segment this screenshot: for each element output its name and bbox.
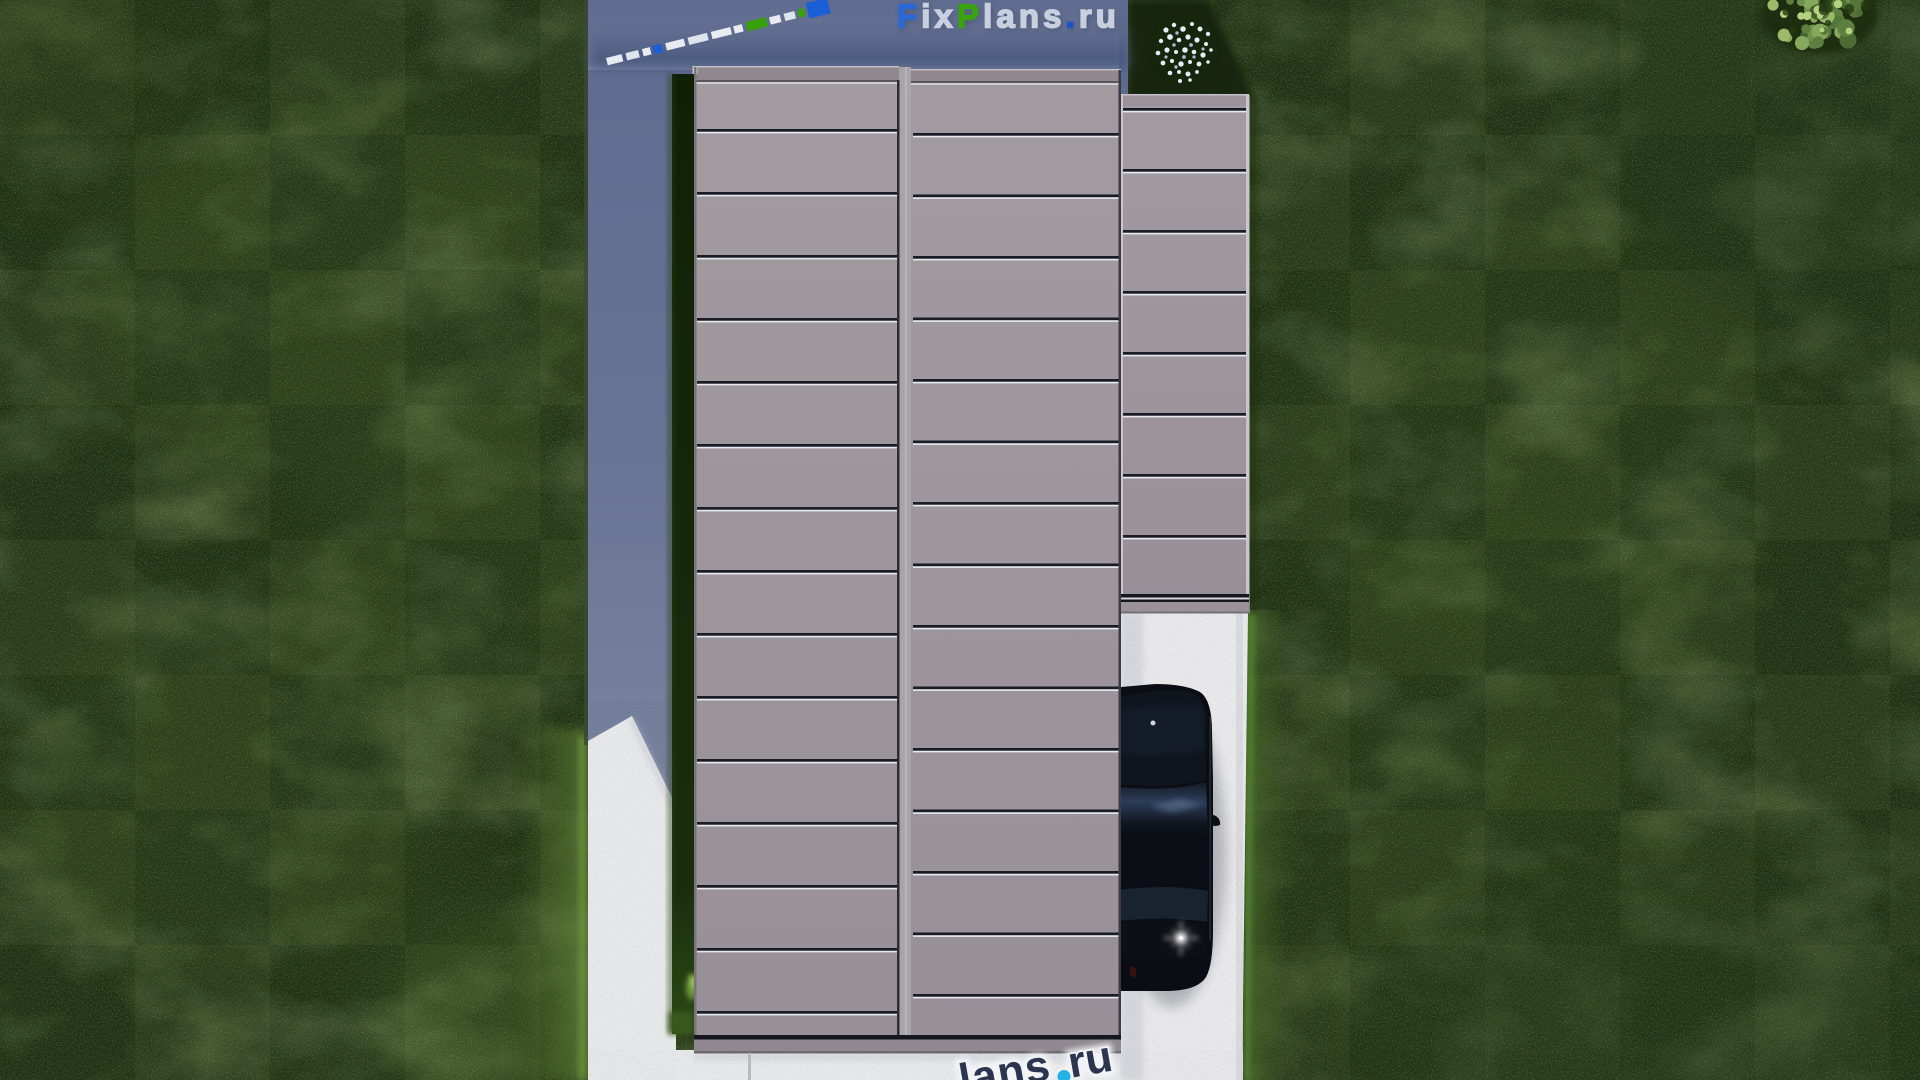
svg-text:FixPlans.ru: FixPlans.ru bbox=[897, 0, 1120, 35]
